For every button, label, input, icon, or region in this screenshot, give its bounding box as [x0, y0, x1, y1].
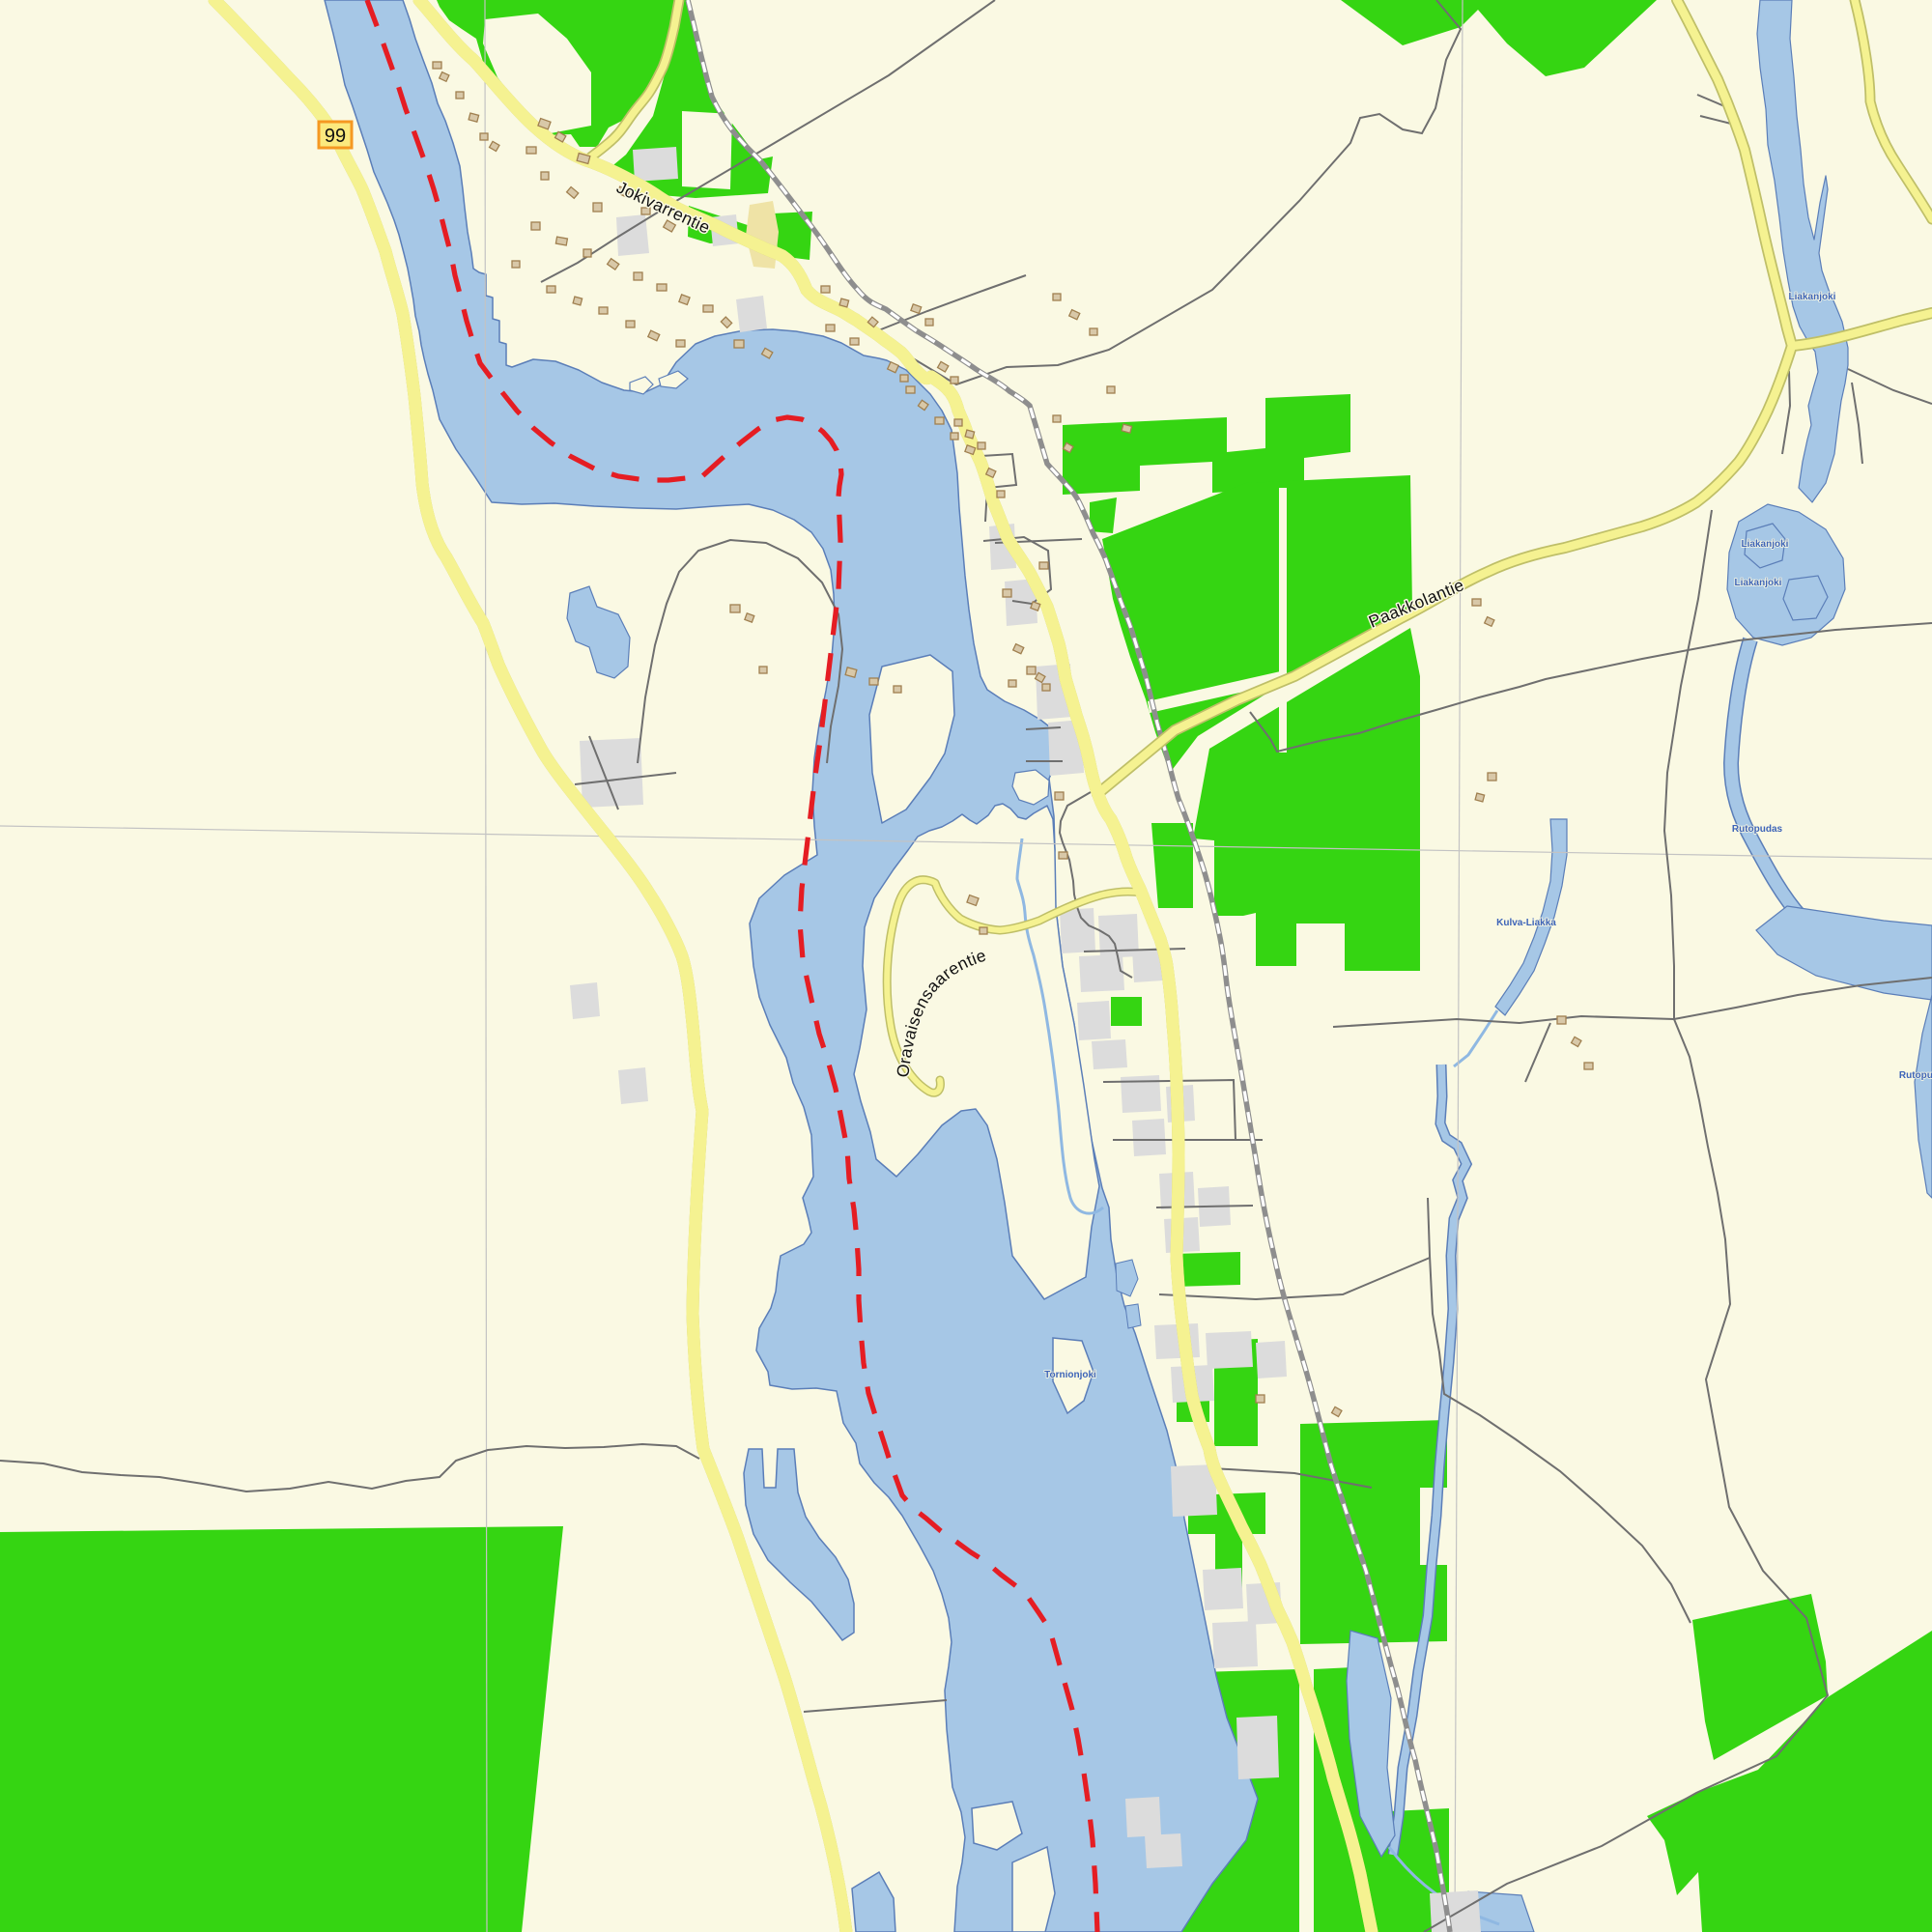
svg-text:Rutopudas: Rutopudas — [1732, 824, 1783, 835]
svg-text:Liakanjoki: Liakanjoki — [1789, 292, 1836, 302]
svg-text:99: 99 — [325, 126, 346, 147]
svg-text:Liakanjoki: Liakanjoki — [1742, 539, 1789, 550]
svg-text:Liakanjoki: Liakanjoki — [1735, 578, 1782, 588]
svg-text:Kulva-Liakka: Kulva-Liakka — [1496, 918, 1556, 928]
svg-text:Tornionjoki: Tornionjoki — [1044, 1370, 1096, 1380]
svg-text:Rutopudas: Rutopudas — [1899, 1070, 1932, 1081]
